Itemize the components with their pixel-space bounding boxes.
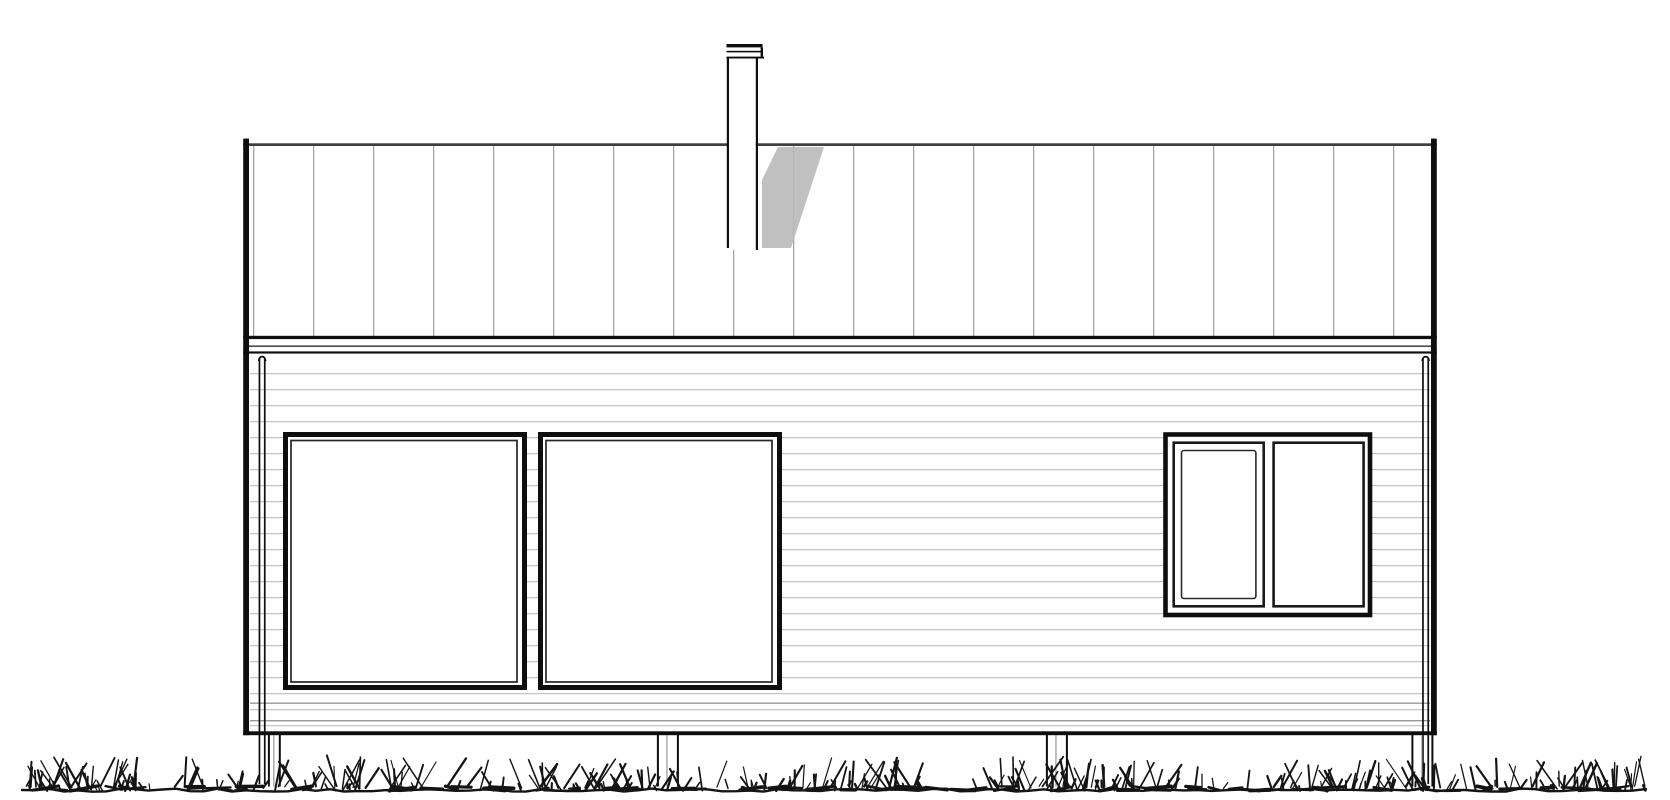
grass-stroke xyxy=(1242,789,1260,791)
grass-stroke xyxy=(1229,787,1243,788)
chimney-cap-bottom xyxy=(727,57,765,59)
roof-seams xyxy=(246,146,1432,336)
grass-stroke xyxy=(1577,777,1578,788)
grass-stroke xyxy=(1063,781,1064,786)
grass-stroke xyxy=(502,778,503,789)
downspout-left-line1 xyxy=(259,359,261,785)
grass-stroke xyxy=(1186,786,1201,787)
chimney-cap-tab xyxy=(761,47,763,56)
grass-stroke xyxy=(1496,759,1497,787)
grass-stroke xyxy=(1500,789,1521,790)
roof xyxy=(243,143,1437,336)
skirt-line-upper xyxy=(250,703,1430,704)
grass-stroke xyxy=(221,789,232,791)
grass-stroke xyxy=(1541,787,1553,788)
grass-stroke xyxy=(149,784,150,791)
fascia-bottom-line xyxy=(243,351,1437,353)
grass-stroke xyxy=(780,784,781,790)
window-large-center xyxy=(541,435,780,688)
grass-stroke xyxy=(1132,779,1133,787)
grass-stroke xyxy=(1434,765,1435,788)
corner-board-right xyxy=(1431,139,1437,736)
chimney-cap-top xyxy=(727,44,763,47)
window-double-right-frame xyxy=(1166,435,1371,616)
grass-stroke xyxy=(1552,785,1554,790)
grass-stroke xyxy=(217,780,218,786)
corner-board-left xyxy=(243,139,249,736)
grass-stroke xyxy=(1169,780,1170,786)
grass-stroke xyxy=(1134,761,1135,788)
grass-stroke xyxy=(389,789,397,791)
downspout-right-line1 xyxy=(1422,359,1424,785)
chimney-flue-right-line xyxy=(756,47,758,250)
wall-base-line xyxy=(243,731,1437,735)
downspout-left-line2 xyxy=(264,359,266,785)
grass-stroke xyxy=(1612,770,1613,790)
grass-stroke xyxy=(204,787,231,788)
chimney-flue-face xyxy=(729,47,756,250)
elevation-canvas xyxy=(0,0,1670,800)
elevation-drawing xyxy=(0,0,1670,800)
grass-stroke xyxy=(1614,763,1615,791)
grass-stroke xyxy=(603,782,604,788)
chimney-cap-mid xyxy=(727,51,764,53)
fascia-mid-line xyxy=(248,345,1432,347)
chimney-flue-left-line xyxy=(727,47,729,248)
window-large-left xyxy=(286,435,525,688)
grass-stroke xyxy=(1103,765,1105,786)
grass-stroke xyxy=(202,780,203,790)
skirt-line-lower xyxy=(250,720,1430,721)
post-edge xyxy=(268,735,270,787)
grass-stroke xyxy=(1299,786,1300,791)
grass-stroke xyxy=(360,757,361,788)
grass-stroke xyxy=(1190,789,1204,790)
post-center-line xyxy=(666,735,667,787)
window-large-center-frame xyxy=(541,435,780,688)
window-large-left-frame xyxy=(286,435,525,688)
downspout-right-line2 xyxy=(1427,359,1429,785)
grass-stroke xyxy=(1313,787,1322,788)
ridge-line xyxy=(243,143,1437,146)
grass-stroke xyxy=(896,760,897,790)
grass-stroke xyxy=(814,775,815,789)
grass-stroke xyxy=(1426,790,1442,791)
grass-stroke xyxy=(1065,774,1066,790)
grass-stroke xyxy=(394,769,395,791)
window-double-right xyxy=(1166,435,1371,616)
post-center-line xyxy=(273,735,274,787)
grass-stroke xyxy=(806,790,813,791)
eave-line xyxy=(243,336,1437,339)
grass-stroke xyxy=(544,790,568,791)
